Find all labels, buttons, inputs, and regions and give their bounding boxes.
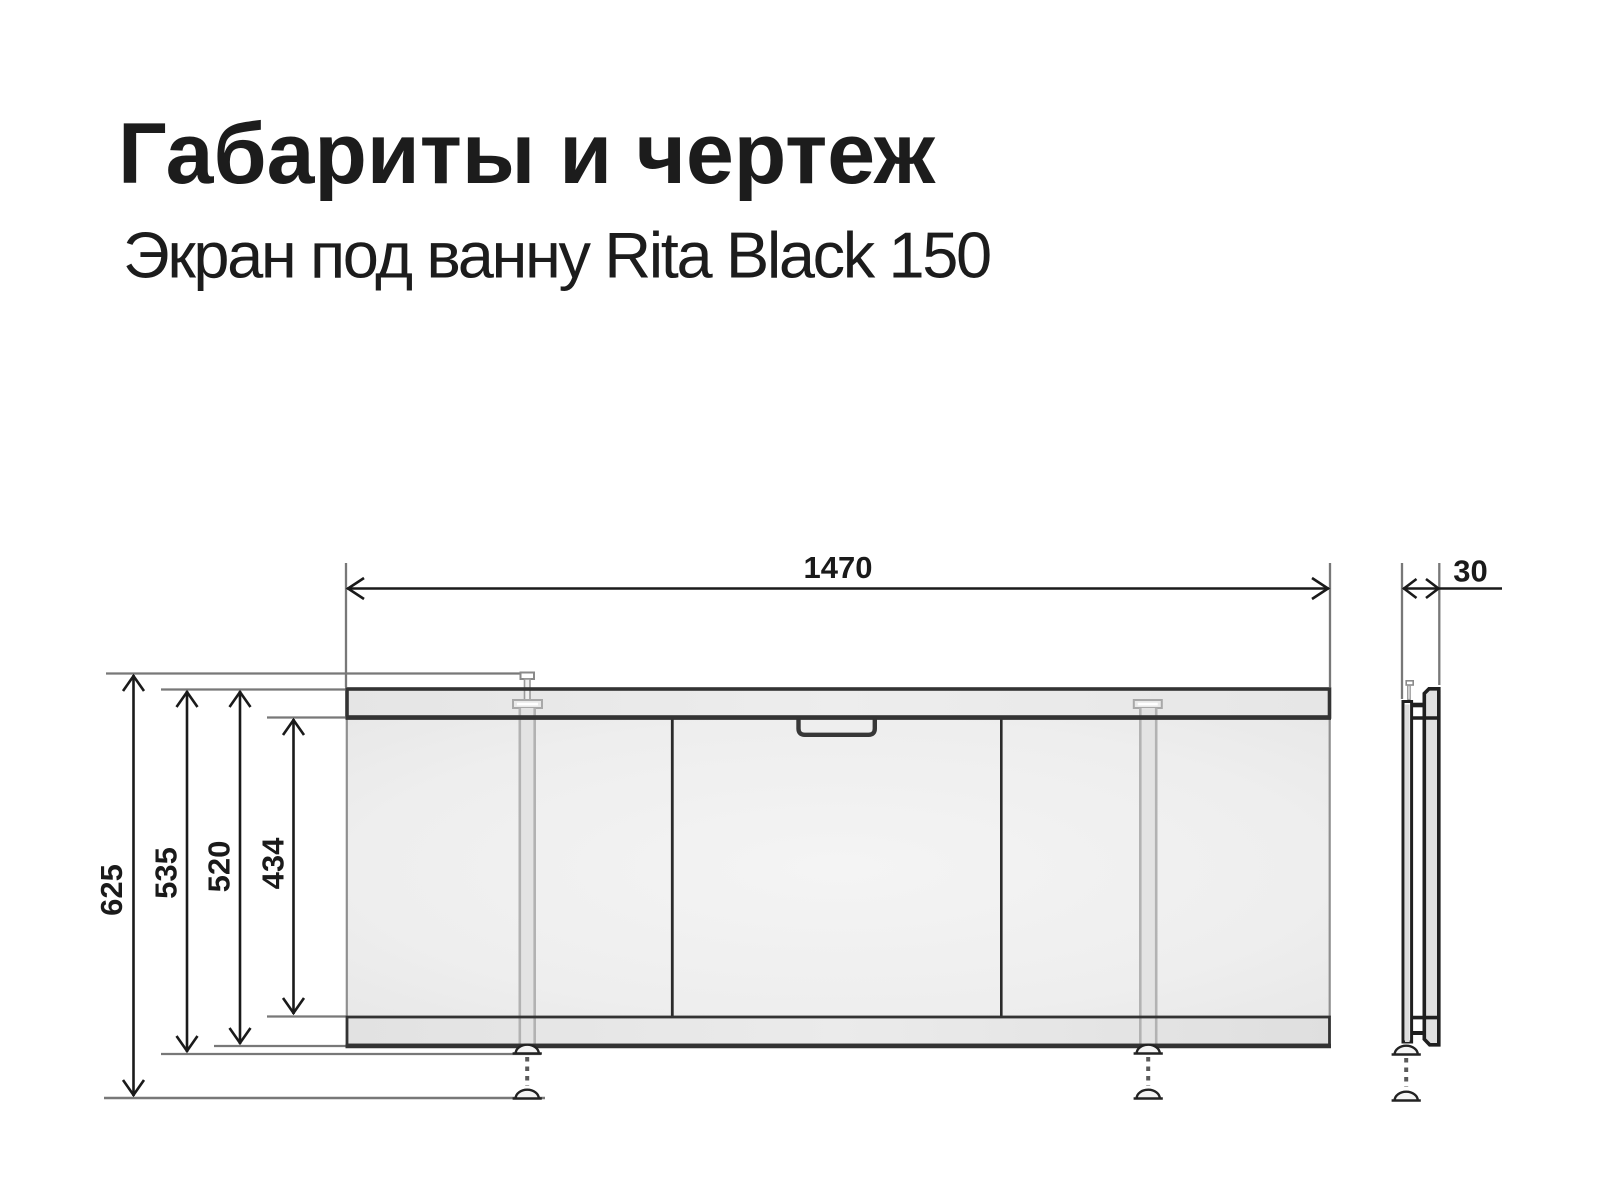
svg-text:1470: 1470 <box>804 550 873 585</box>
svg-text:Экран под ванну Rita Black 150: Экран под ванну Rita Black 150 <box>123 219 990 292</box>
svg-text:535: 535 <box>149 847 184 899</box>
svg-text:520: 520 <box>202 841 237 893</box>
svg-text:Габариты и чертеж: Габариты и чертеж <box>118 106 936 202</box>
svg-text:434: 434 <box>256 837 291 889</box>
svg-text:625: 625 <box>94 864 129 916</box>
svg-text:30: 30 <box>1453 554 1487 589</box>
